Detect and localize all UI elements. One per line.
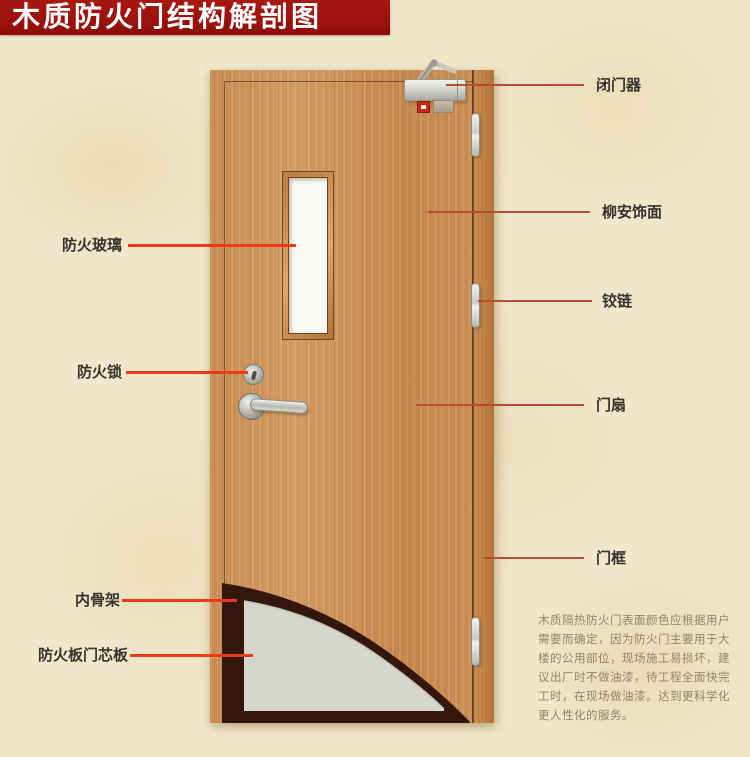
leader-line-door-frame — [484, 557, 584, 559]
door-closer-body — [404, 79, 466, 101]
label-fire-lock: 防火锁 — [28, 364, 122, 380]
title-banner: 木质防火门结构解剖图 — [0, 0, 390, 35]
fire-lock-cylinder — [243, 364, 264, 385]
fire-glass-window-frame — [282, 171, 334, 340]
hinge-top — [471, 113, 480, 157]
leader-line-fire-lock — [126, 371, 248, 374]
label-door-leaf: 门扇 — [596, 397, 626, 413]
page-title: 木质防火门结构解剖图 — [0, 0, 390, 34]
poster-root: { "title": "木质防火门结构解剖图", "labels": { "le… — [0, 0, 750, 757]
leader-line-inner-skeleton — [122, 599, 237, 602]
door-cutaway-section — [220, 575, 474, 723]
fire-board-core-shape — [244, 601, 444, 711]
label-lauan-veneer: 柳安饰面 — [602, 204, 662, 220]
leader-line-hinge — [478, 300, 592, 302]
door-closer-endcap — [457, 80, 458, 100]
hinge-middle — [471, 283, 480, 328]
label-fire-glass: 防火玻璃 — [28, 237, 122, 253]
red-indicator-plate — [417, 101, 430, 113]
red-indicator-dot — [421, 105, 426, 109]
label-door-frame: 门框 — [596, 550, 626, 566]
leader-line-door-leaf — [416, 404, 584, 406]
fire-door-illustration — [210, 70, 494, 723]
strike-plate — [433, 100, 454, 113]
leader-line-fire-board-core — [130, 654, 253, 657]
leader-line-door-closer — [446, 84, 584, 86]
label-hinge: 铰链 — [602, 293, 632, 309]
leader-line-veneer — [428, 211, 590, 213]
leader-line-fire-glass — [128, 244, 296, 247]
keyhole-icon — [251, 371, 257, 381]
label-fire-board-core: 防火板门芯板 — [24, 647, 128, 663]
fire-glass-pane — [288, 177, 328, 334]
label-door-closer: 闭门器 — [596, 77, 641, 93]
label-inner-skeleton: 内骨架 — [28, 592, 120, 608]
product-description: 木质隔热防火门表面颜色应根据用户 需要而确定，因为防火门主要用于大 楼的公用部位… — [538, 611, 733, 725]
